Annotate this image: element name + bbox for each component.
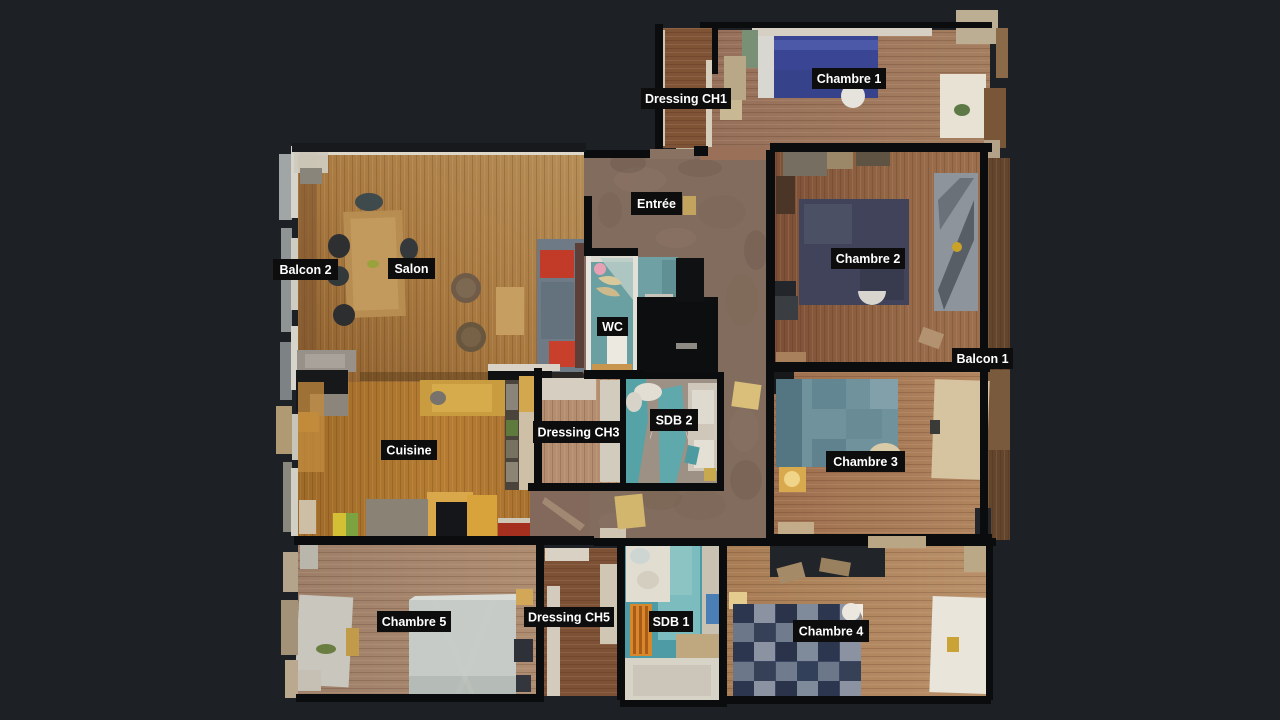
svg-text:Chambre 5: Chambre 5 — [382, 615, 447, 629]
svg-text:Salon: Salon — [394, 262, 428, 276]
svg-text:Entrée: Entrée — [637, 197, 676, 211]
svg-text:SDB 2: SDB 2 — [656, 414, 693, 428]
svg-text:Dressing CH3: Dressing CH3 — [538, 426, 620, 440]
svg-text:Chambre 1: Chambre 1 — [817, 72, 882, 86]
svg-text:Dressing CH1: Dressing CH1 — [645, 92, 727, 106]
svg-text:Balcon 2: Balcon 2 — [279, 263, 331, 277]
svg-text:Chambre 3: Chambre 3 — [833, 455, 898, 469]
svg-text:Chambre 4: Chambre 4 — [799, 625, 864, 639]
svg-text:Cuisine: Cuisine — [386, 444, 431, 458]
svg-text:Chambre 2: Chambre 2 — [836, 252, 901, 266]
svg-text:WC: WC — [602, 320, 623, 334]
svg-text:Balcon 1: Balcon 1 — [956, 352, 1008, 366]
svg-text:SDB 1: SDB 1 — [653, 615, 690, 629]
svg-text:Dressing CH5: Dressing CH5 — [528, 611, 610, 625]
